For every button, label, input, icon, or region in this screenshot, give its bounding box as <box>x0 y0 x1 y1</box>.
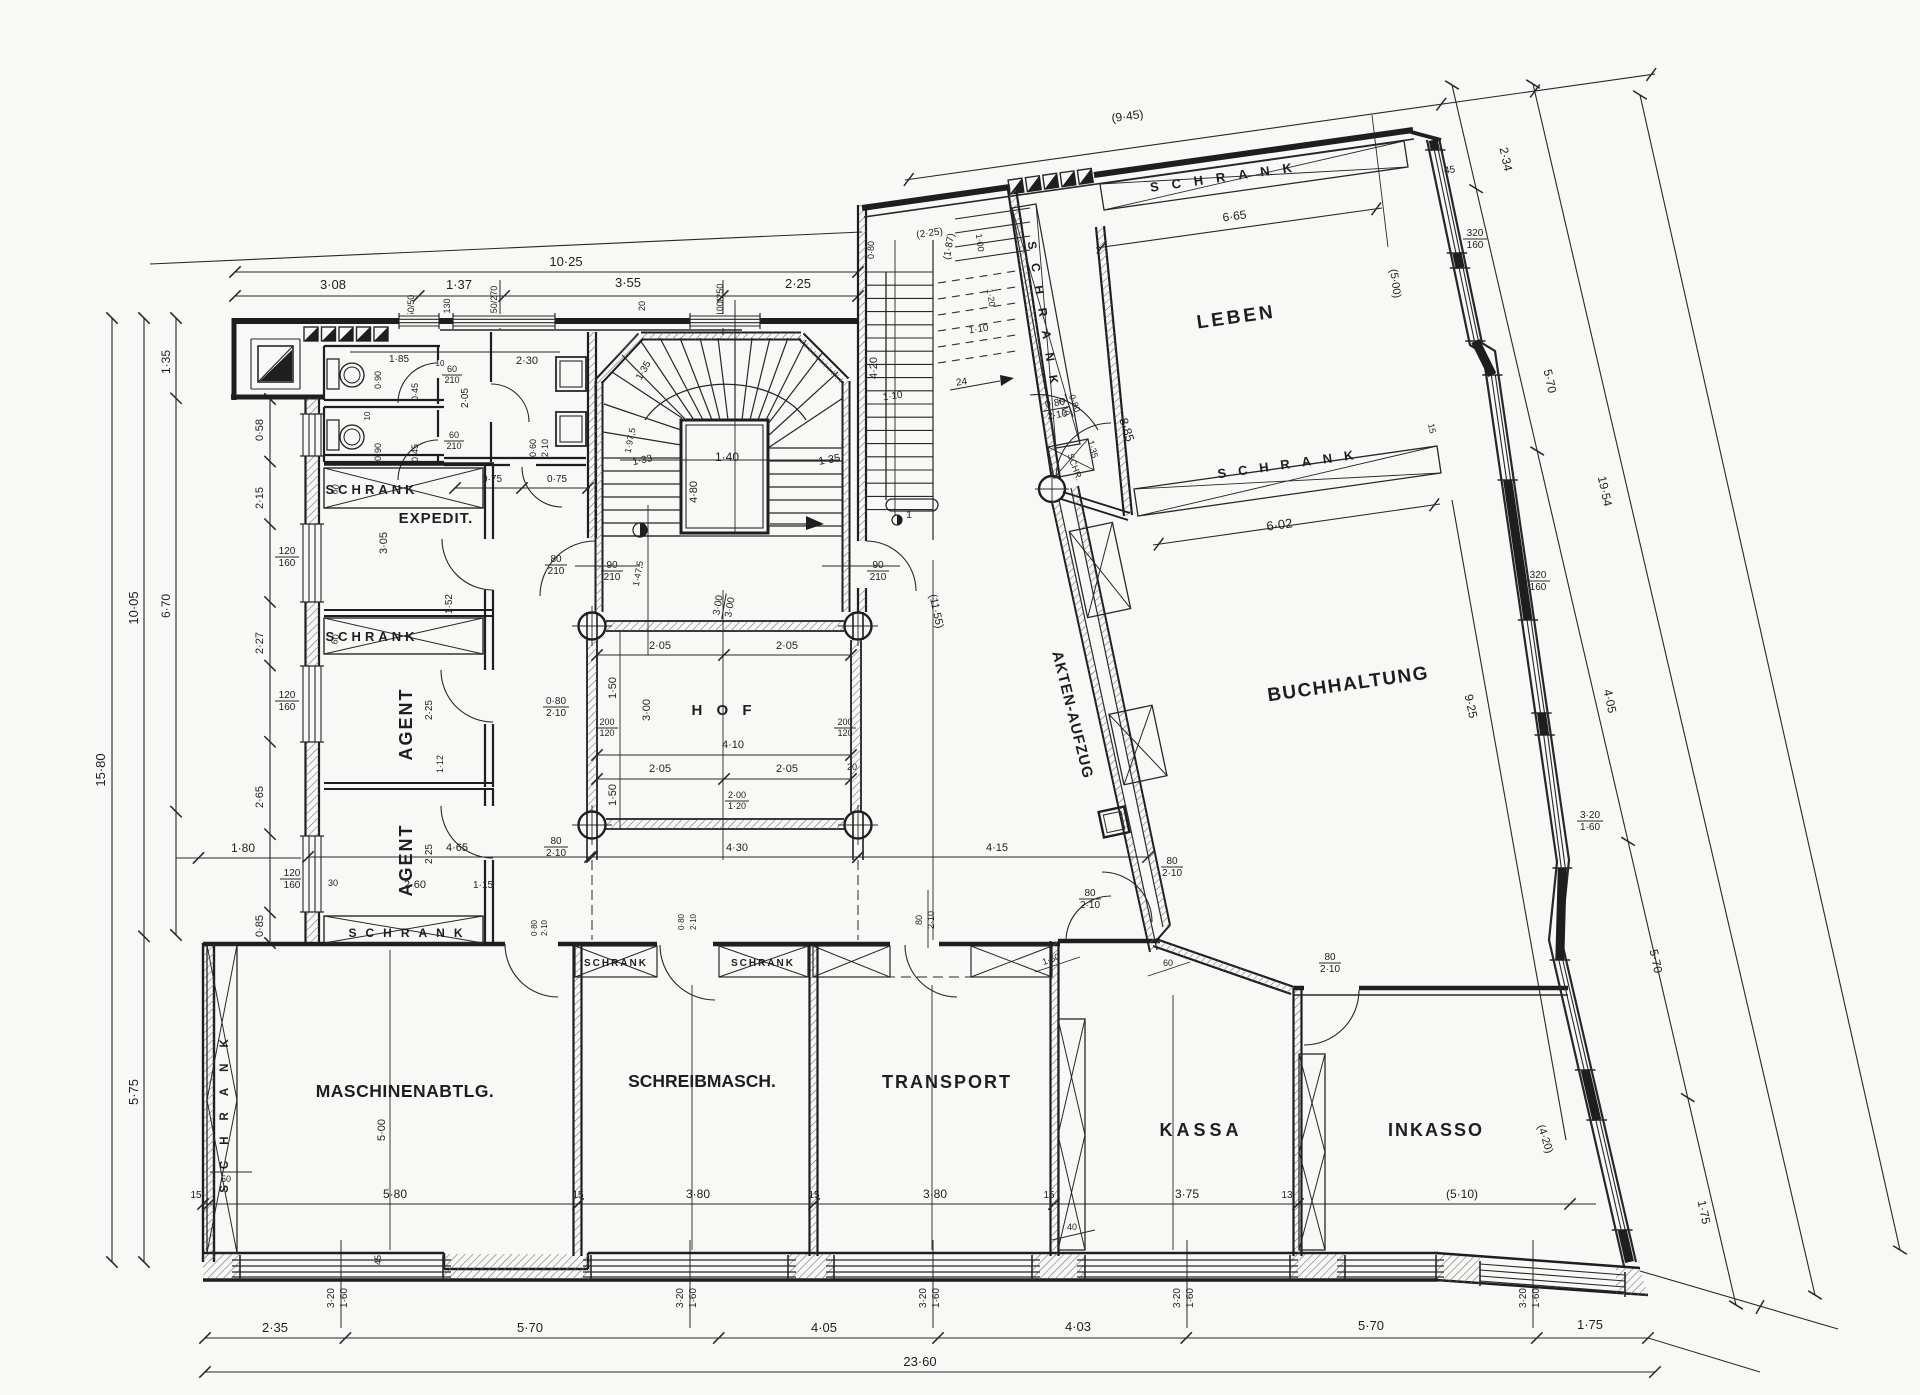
svg-text:3·20: 3·20 <box>1580 810 1600 821</box>
svg-text:3·20: 3·20 <box>326 1288 337 1308</box>
svg-text:13: 13 <box>1281 1190 1293 1201</box>
svg-text:130: 130 <box>442 298 452 313</box>
svg-text:15·80: 15·80 <box>93 753 108 786</box>
svg-text:1·60: 1·60 <box>1185 1288 1196 1308</box>
svg-text:1·15: 1·15 <box>473 880 493 891</box>
svg-text:1·40: 1·40 <box>715 450 739 464</box>
svg-text:4·65: 4·65 <box>446 842 468 854</box>
svg-text:0·75: 0·75 <box>547 474 567 485</box>
svg-text:3·20: 3·20 <box>675 1288 686 1308</box>
svg-text:20: 20 <box>847 762 857 772</box>
svg-text:0·60: 0·60 <box>528 439 538 457</box>
svg-text:2·10: 2·10 <box>1320 964 1340 975</box>
svg-text:2·10: 2·10 <box>1080 900 1100 911</box>
svg-text:50/50: 50/50 <box>406 295 416 318</box>
svg-text:AGENT: AGENT <box>396 688 416 761</box>
svg-text:320: 320 <box>1530 570 1547 581</box>
svg-text:10: 10 <box>436 359 445 368</box>
svg-text:5·75: 5·75 <box>126 1079 141 1105</box>
svg-text:2·10: 2·10 <box>1162 868 1182 879</box>
svg-text:1·35: 1·35 <box>159 350 173 374</box>
svg-text:1·60: 1·60 <box>1531 1288 1542 1308</box>
svg-text:120: 120 <box>279 546 296 557</box>
svg-text:SCHREIBMASCH.: SCHREIBMASCH. <box>628 1071 776 1091</box>
svg-text:5·80: 5·80 <box>383 1187 407 1201</box>
svg-text:2·15: 2·15 <box>254 487 266 509</box>
svg-text:5·70: 5·70 <box>1358 1318 1384 1333</box>
svg-text:10: 10 <box>363 411 372 420</box>
svg-text:60: 60 <box>447 364 457 374</box>
svg-text:90: 90 <box>872 560 884 571</box>
svg-text:2·10: 2·10 <box>546 708 566 719</box>
svg-text:160: 160 <box>1467 240 1484 251</box>
svg-text:4·05: 4·05 <box>811 1320 837 1335</box>
svg-text:6·70: 6·70 <box>159 594 173 618</box>
svg-text:2·05: 2·05 <box>776 763 798 775</box>
svg-text:MASCHINENABTLG.: MASCHINENABTLG. <box>316 1081 495 1101</box>
svg-text:23·60: 23·60 <box>903 1354 936 1369</box>
svg-text:80: 80 <box>1166 856 1178 867</box>
svg-text:120: 120 <box>599 728 614 738</box>
svg-text:1·60: 1·60 <box>1580 822 1600 833</box>
svg-text:160: 160 <box>284 880 301 891</box>
svg-text:TRANSPORT: TRANSPORT <box>882 1072 1012 1092</box>
svg-text:120: 120 <box>837 728 852 738</box>
svg-text:0·80: 0·80 <box>677 913 686 930</box>
svg-text:3·05: 3·05 <box>378 532 390 554</box>
svg-text:SCHRANK: SCHRANK <box>219 1023 231 1193</box>
svg-text:80: 80 <box>550 836 562 847</box>
svg-text:4·30: 4·30 <box>726 842 748 854</box>
svg-text:2·05: 2·05 <box>776 640 798 652</box>
svg-text:3·55: 3·55 <box>615 275 641 290</box>
svg-text:80: 80 <box>1324 952 1336 963</box>
svg-text:80: 80 <box>914 915 924 925</box>
svg-text:1·60: 1·60 <box>688 1288 699 1308</box>
svg-text:0·45: 0·45 <box>410 383 420 401</box>
svg-text:60: 60 <box>1163 958 1173 968</box>
svg-text:0·58: 0·58 <box>254 419 266 441</box>
svg-text:3·20: 3·20 <box>1172 1288 1183 1308</box>
svg-text:210: 210 <box>548 566 565 577</box>
svg-text:3·20: 3·20 <box>1518 1288 1529 1308</box>
svg-text:SCHRANK: SCHRANK <box>584 958 648 969</box>
svg-text:1·85: 1·85 <box>389 354 409 365</box>
svg-text:3·80: 3·80 <box>686 1187 710 1201</box>
svg-text:80: 80 <box>550 554 562 565</box>
svg-text:H O F: H O F <box>692 702 757 719</box>
svg-text:15: 15 <box>1043 1190 1055 1201</box>
svg-text:210: 210 <box>444 375 459 385</box>
svg-text:120: 120 <box>284 868 301 879</box>
svg-text:1·37: 1·37 <box>446 277 472 292</box>
svg-text:0·80: 0·80 <box>546 696 566 707</box>
svg-text:24: 24 <box>955 376 968 389</box>
svg-text:2·60: 2·60 <box>404 879 426 891</box>
svg-text:20: 20 <box>637 301 647 311</box>
svg-text:2·00: 2·00 <box>728 790 746 800</box>
svg-text:2·10: 2·10 <box>926 911 936 929</box>
svg-text:0·80: 0·80 <box>530 919 539 936</box>
svg-text:10·05: 10·05 <box>126 591 141 624</box>
svg-text:150/270: 150/270 <box>489 286 499 319</box>
svg-text:4·10: 4·10 <box>722 739 744 751</box>
svg-text:1·60: 1·60 <box>931 1288 942 1308</box>
svg-text:1·80: 1·80 <box>231 841 255 855</box>
svg-text:50: 50 <box>221 1174 231 1184</box>
svg-text:1·60: 1·60 <box>339 1288 350 1308</box>
svg-text:3·08: 3·08 <box>320 277 346 292</box>
svg-text:160: 160 <box>279 558 296 569</box>
svg-text:2·10: 2·10 <box>540 439 550 457</box>
svg-text:0·80: 0·80 <box>866 241 876 259</box>
svg-text:2·65: 2·65 <box>254 786 266 808</box>
svg-text:30: 30 <box>328 878 338 888</box>
svg-text:1·12: 1·12 <box>435 755 445 773</box>
svg-text:210: 210 <box>870 572 887 583</box>
svg-text:3·75: 3·75 <box>1175 1187 1199 1201</box>
svg-text:210: 210 <box>604 572 621 583</box>
svg-text:KASSA: KASSA <box>1159 1120 1242 1140</box>
svg-text:1: 1 <box>906 510 912 521</box>
svg-text:4·80: 4·80 <box>688 481 700 503</box>
svg-text:160: 160 <box>1530 582 1547 593</box>
svg-text:4·20: 4·20 <box>868 357 880 379</box>
svg-text:1·50: 1·50 <box>607 677 619 699</box>
svg-text:0·85: 0·85 <box>254 915 266 937</box>
svg-text:3·20: 3·20 <box>918 1288 929 1308</box>
svg-text:2·25: 2·25 <box>424 844 435 864</box>
svg-text:3·00: 3·00 <box>641 699 653 721</box>
svg-text:1·20: 1·20 <box>728 801 746 811</box>
svg-text:5·00: 5·00 <box>376 1119 388 1141</box>
svg-text:2·30: 2·30 <box>516 355 538 367</box>
svg-text:EXPEDIT.: EXPEDIT. <box>399 510 474 527</box>
svg-text:2·25: 2·25 <box>785 276 811 291</box>
svg-text:4·15: 4·15 <box>986 842 1008 854</box>
svg-text:0·45: 0·45 <box>410 444 420 462</box>
svg-text:80: 80 <box>1084 888 1096 899</box>
svg-text:200: 200 <box>837 717 852 727</box>
svg-text:2·25: 2·25 <box>424 700 435 720</box>
svg-text:2·05: 2·05 <box>649 763 671 775</box>
svg-text:15: 15 <box>1426 422 1438 434</box>
svg-text:(5·10): (5·10) <box>1446 1187 1478 1201</box>
svg-text:0·90: 0·90 <box>373 371 383 389</box>
svg-text:2·10: 2·10 <box>689 913 698 930</box>
svg-text:2·05: 2·05 <box>649 640 671 652</box>
svg-text:15: 15 <box>190 1190 202 1201</box>
svg-text:60: 60 <box>449 430 459 440</box>
svg-text:210: 210 <box>446 441 461 451</box>
svg-text:90: 90 <box>606 560 618 571</box>
svg-text:1·50: 1·50 <box>607 784 619 806</box>
svg-text:10·25: 10·25 <box>549 254 582 269</box>
svg-text:4·03: 4·03 <box>1065 1319 1091 1334</box>
svg-text:2·27: 2·27 <box>254 632 266 654</box>
svg-text:0·90: 0·90 <box>373 443 383 461</box>
svg-text:200: 200 <box>599 717 614 727</box>
svg-text:120: 120 <box>279 690 296 701</box>
svg-text:SCHRANK: SCHRANK <box>731 958 795 969</box>
svg-text:3·80: 3·80 <box>923 1187 947 1201</box>
svg-text:2·05: 2·05 <box>460 388 471 408</box>
svg-text:INKASSO: INKASSO <box>1388 1120 1484 1140</box>
svg-text:320: 320 <box>1467 228 1484 239</box>
svg-text:40: 40 <box>1067 1222 1077 1232</box>
svg-text:2·10: 2·10 <box>540 919 549 936</box>
svg-text:5·70: 5·70 <box>517 1320 543 1335</box>
svg-text:1·75: 1·75 <box>1577 1317 1603 1332</box>
svg-text:160: 160 <box>279 702 296 713</box>
svg-text:SCHRANK: SCHRANK <box>349 926 472 940</box>
svg-text:2·35: 2·35 <box>262 1320 288 1335</box>
